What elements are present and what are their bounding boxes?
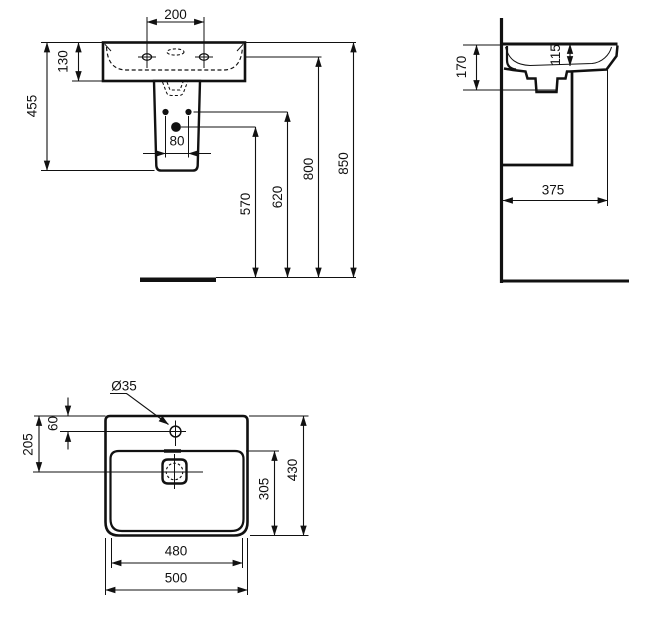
- dim-label-430: 430: [285, 459, 300, 482]
- dim-label-dia35: Ø35: [111, 379, 137, 394]
- floor-line-front: [140, 278, 216, 283]
- dim-bolt-height: 620: [270, 112, 288, 278]
- dim-rear-to-faucet: 60: [46, 398, 69, 450]
- dim-label-500: 500: [165, 571, 188, 586]
- basin-outline-front: [103, 43, 245, 82]
- technical-drawing-canvas: 200 130 455 80 570 620 800: [0, 0, 653, 630]
- dim-label-455: 455: [25, 95, 40, 118]
- dim-drain-height: 570: [238, 127, 256, 278]
- dim-label-205: 205: [21, 433, 36, 456]
- dim-wall-to-front: 375: [503, 183, 608, 201]
- dim-bowl-width: 480: [112, 544, 243, 564]
- dim-rim-to-pedestal-bottom: 455: [25, 43, 48, 171]
- plan-view: Ø35 60 205 305 430 480 500: [21, 379, 309, 596]
- fixing-bolt-right: [185, 109, 191, 115]
- dim-label-375: 375: [542, 183, 565, 198]
- dim-overall-width: 500: [106, 571, 248, 591]
- dim-label-115: 115: [548, 44, 563, 66]
- dim-label-620: 620: [270, 186, 285, 209]
- front-view: 200 130 455 80 570 620 800: [25, 7, 357, 282]
- dim-faucet-spacing: 200: [147, 7, 204, 22]
- side-view: 170 115 375: [454, 18, 629, 283]
- technical-drawing-page: 200 130 455 80 570 620 800: [0, 0, 653, 630]
- fixing-bracket-side: [507, 46, 516, 70]
- dim-label-80: 80: [169, 134, 184, 149]
- drain-outlet-dot: [171, 122, 181, 132]
- dim-rim-to-underside: 130: [56, 43, 79, 82]
- dim-front-apron-height: 170: [454, 45, 477, 90]
- dim-label-570: 570: [238, 193, 253, 216]
- dim-label-60: 60: [46, 416, 61, 431]
- dim-bowl-front-depth: 305: [257, 451, 275, 536]
- dim-label-305: 305: [257, 478, 272, 501]
- dim-label-200: 200: [164, 7, 187, 22]
- dim-label-850: 850: [336, 152, 351, 175]
- dim-bowl-depth: 115: [548, 44, 570, 66]
- dim-rear-to-drain: 205: [21, 416, 40, 472]
- dim-faucet-height: 800: [301, 57, 319, 278]
- dim-overall-depth: 430: [285, 416, 304, 536]
- dim-label-130: 130: [56, 50, 71, 73]
- fixing-bolt-left: [162, 109, 168, 115]
- dim-label-480: 480: [165, 544, 188, 559]
- dim-label-170: 170: [454, 56, 469, 79]
- dim-rim-height: 850: [336, 43, 354, 278]
- dim-label-800: 800: [301, 158, 316, 181]
